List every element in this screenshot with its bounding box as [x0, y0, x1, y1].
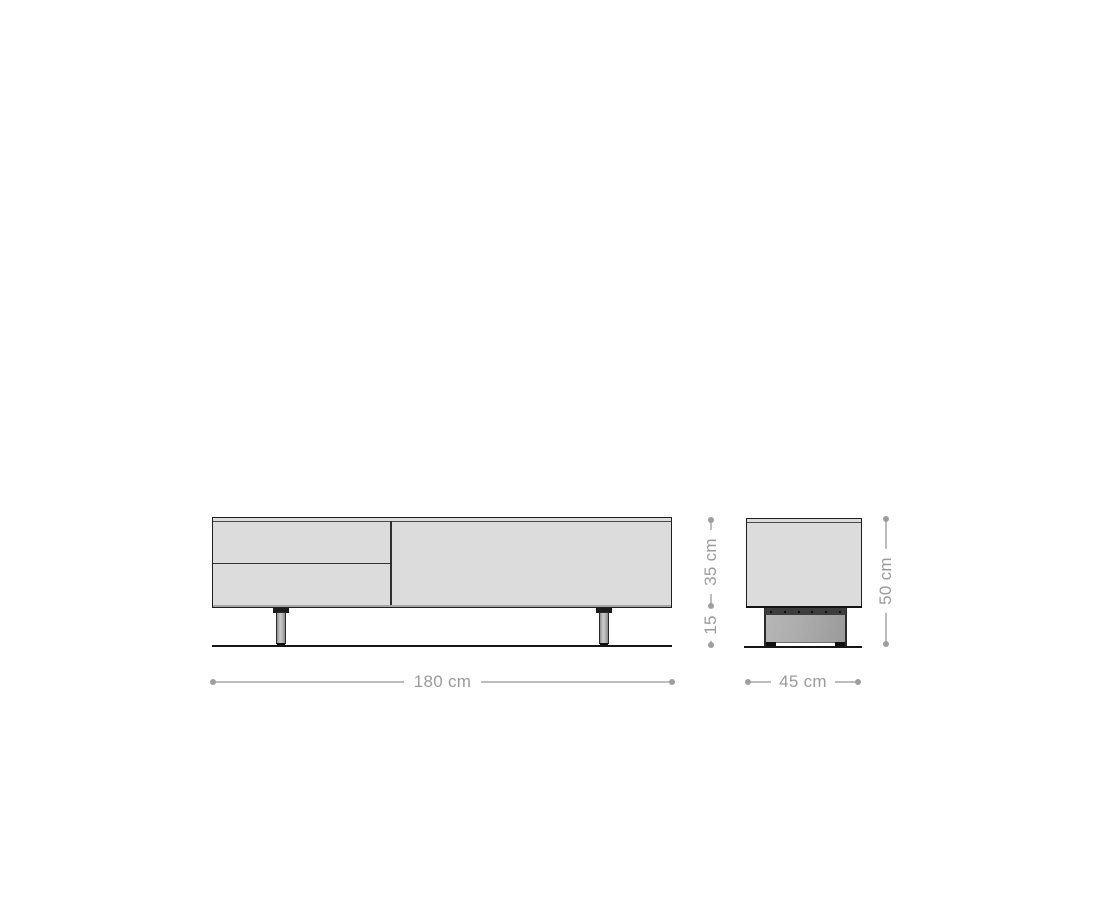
cabinet-body: [212, 517, 672, 608]
door-panel: [392, 518, 671, 607]
drawer-bottom: [213, 564, 390, 607]
base-top-strip: [765, 608, 846, 615]
dimension-endpoint-dot: [708, 642, 714, 648]
side-body: [746, 518, 862, 608]
screw-dot: [798, 611, 800, 613]
leg-height-dimension-label: 15: [701, 609, 721, 641]
width-dimension-label: 180 cm: [213, 672, 672, 692]
screw-dot: [811, 611, 813, 613]
dimension-endpoint-dot: [883, 516, 889, 522]
depth-dimension-label: 45 cm: [748, 672, 858, 692]
dimension-endpoint-dot: [708, 517, 714, 523]
screw-dot: [784, 611, 786, 613]
drawer-top: [213, 518, 390, 563]
dimension-endpoint-dot: [883, 641, 889, 647]
base-panel: [766, 615, 845, 643]
screw-dot: [839, 611, 841, 613]
dimension-endpoint-dot: [708, 603, 714, 609]
dimension-diagram: 180 cm: [0, 0, 1100, 916]
side-ground-line: [744, 646, 862, 648]
leg-body: [599, 612, 609, 644]
cabinet-bottom-shade: [213, 605, 671, 607]
screw-dot: [825, 611, 827, 613]
side-top-panel-line: [747, 522, 861, 523]
leg-body: [276, 612, 286, 644]
body-height-dimension-label: 35 cm: [701, 530, 721, 594]
screw-dot: [770, 611, 772, 613]
total-height-dimension-label: 50 cm: [876, 549, 896, 613]
front-ground-line: [212, 645, 672, 647]
